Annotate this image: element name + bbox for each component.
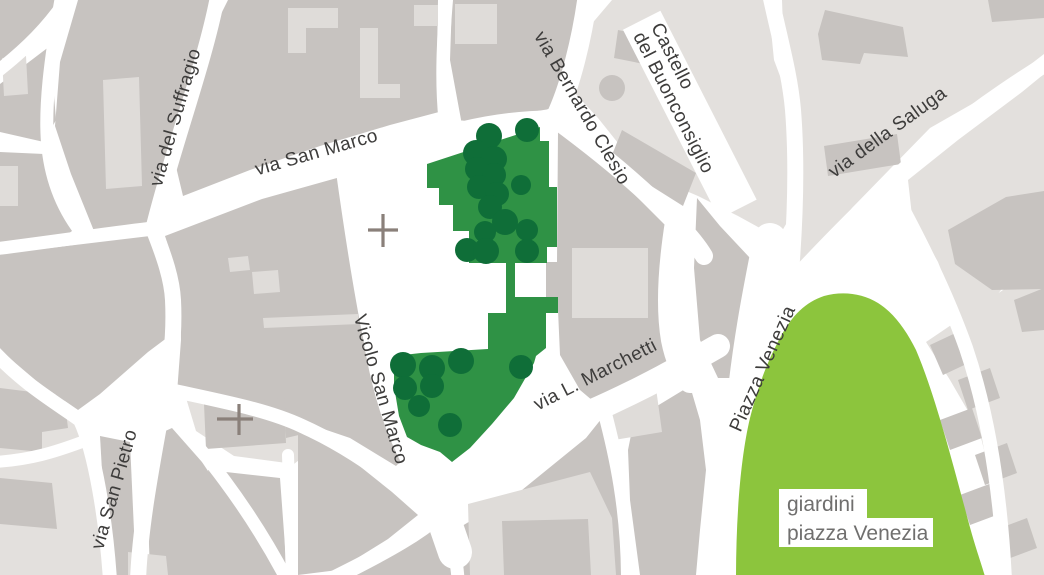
tree-icon [516,219,538,241]
tree-icon [408,395,430,417]
giardini-label-line1: giardini [787,493,855,516]
building [103,77,142,189]
tree-icon [420,374,444,398]
building [0,166,18,206]
building [502,519,591,575]
building [252,270,280,294]
building [414,5,438,26]
parks [390,118,558,462]
church-cross-icon [368,214,398,247]
tree-icon [393,376,417,400]
tree-icon [515,239,539,263]
tree-icon [448,348,474,374]
tree-icon [511,175,531,195]
castle-tower [599,75,625,101]
street [288,455,292,575]
tree-icon [509,355,533,379]
building [228,256,250,272]
giardini-label-line2: piazza Venezia [787,522,929,545]
tree-icon [390,352,416,378]
tree-icon [473,238,499,264]
tree-icon [515,118,539,142]
street [444,520,455,552]
building [455,4,497,44]
tree-icon [438,413,462,437]
building [0,478,57,529]
building [572,248,648,318]
city-map: via del Suffragio via San Marco via Bern… [0,0,1044,575]
street [443,0,447,120]
street [462,117,552,128]
